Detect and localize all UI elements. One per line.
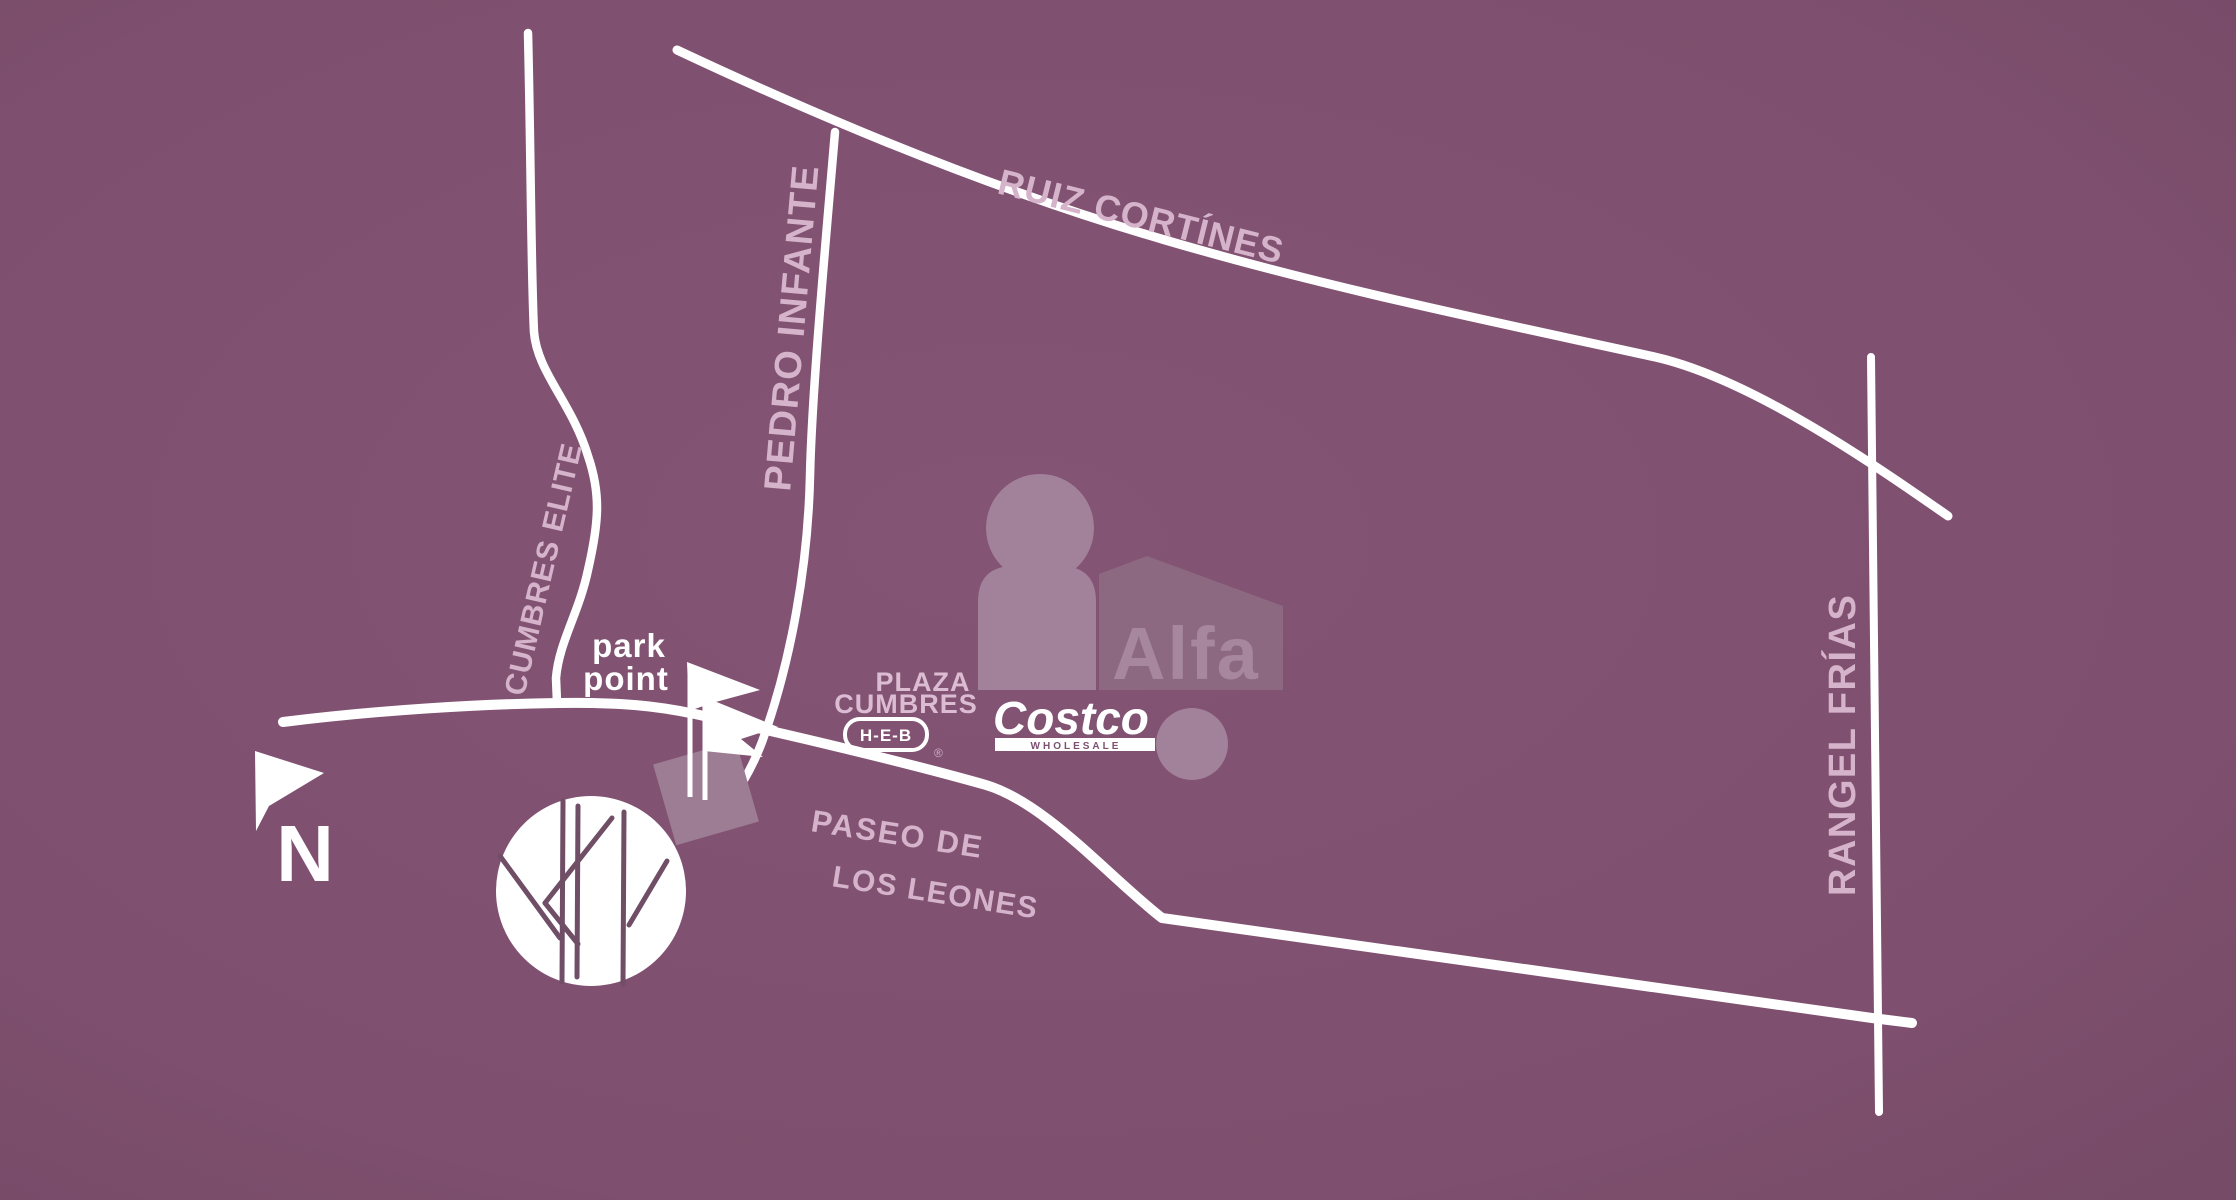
park-point-label-line2: point (583, 660, 669, 697)
costco-logo-text: Costco (993, 692, 1149, 744)
park-point-label: park point (583, 627, 669, 697)
person-icon-body (978, 566, 1096, 690)
heb-label: H-E-B (860, 726, 912, 745)
map-canvas: Alfa N RUIZ CORTÍNES (0, 0, 2236, 1200)
street-label-rangel-frias: RANGEL FRÍAS (1820, 594, 1864, 896)
watermark-brand-text: Alfa (1112, 612, 1260, 695)
park-point-label-line1: park (592, 627, 666, 664)
watermark-dot (1156, 708, 1228, 780)
north-label: N (276, 809, 334, 898)
person-icon-head (986, 474, 1094, 582)
map-stage: Alfa N RUIZ CORTÍNES (0, 0, 2236, 1200)
costco-wholesale-label: WHOLESALE (1031, 741, 1122, 752)
plaza-cumbres-label-line2: CUMBRES (834, 689, 978, 719)
costco-logo: Costco WHOLESALE (993, 692, 1155, 752)
heb-registered-mark: ® (934, 746, 943, 760)
tree-icon (496, 796, 686, 986)
